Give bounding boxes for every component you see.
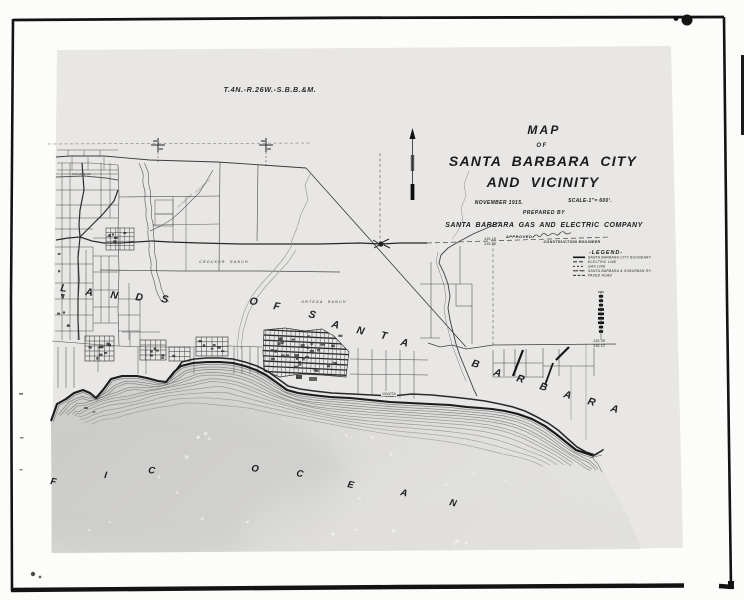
svg-text:ORTEGA RANCH: ORTEGA RANCH: [301, 300, 346, 304]
svg-text:CONSTRUCTION ENGINEER: CONSTRUCTION ENGINEER: [543, 240, 600, 244]
svg-text:ELECTRIC LINE: ELECTRIC LINE: [588, 260, 617, 264]
svg-text:SANTA BARBARA GAS AND ELECTRIC: SANTA BARBARA GAS AND ELECTRIC COMPANY: [445, 222, 643, 229]
svg-text:SAN JOSE RD: SAN JOSE RD: [72, 172, 91, 176]
svg-text:A: A: [84, 286, 94, 299]
svg-text:115.58: 115.58: [484, 241, 497, 246]
svg-text:CROCKER RANCH: CROCKER RANCH: [199, 260, 249, 264]
svg-text:OF: OF: [536, 143, 547, 149]
svg-text:GOLETA: GOLETA: [382, 392, 396, 396]
svg-text:SCALE-1”= 600’.: SCALE-1”= 600’.: [568, 198, 612, 204]
svg-text:GAS LINE: GAS LINE: [588, 265, 606, 269]
svg-text:AND VICINITY: AND VICINITY: [486, 174, 600, 190]
svg-text:SANTA BARBARA CITY BOUNDARY: SANTA BARBARA CITY BOUNDARY: [588, 256, 652, 260]
svg-text:SANTA BARBARA & SUBURBAN RY.: SANTA BARBARA & SUBURBAN RY.: [588, 269, 652, 273]
svg-text:NOVEMBER 1915.: NOVEMBER 1915.: [475, 200, 523, 206]
svg-text:PAVED ROAD: PAVED ROAD: [588, 274, 613, 278]
svg-text:T.4N.-R.26W.-S.B.B.&M.: T.4N.-R.26W.-S.B.B.&M.: [224, 85, 317, 94]
svg-text:SANTA BARBARA CITY: SANTA BARBARA CITY: [449, 153, 638, 169]
svg-text:MAP: MAP: [527, 123, 560, 137]
svg-text:PREPARED BY: PREPARED BY: [523, 210, 565, 216]
svg-text:APPROVED:: APPROVED:: [505, 234, 534, 239]
svg-text:C: C: [148, 465, 156, 477]
